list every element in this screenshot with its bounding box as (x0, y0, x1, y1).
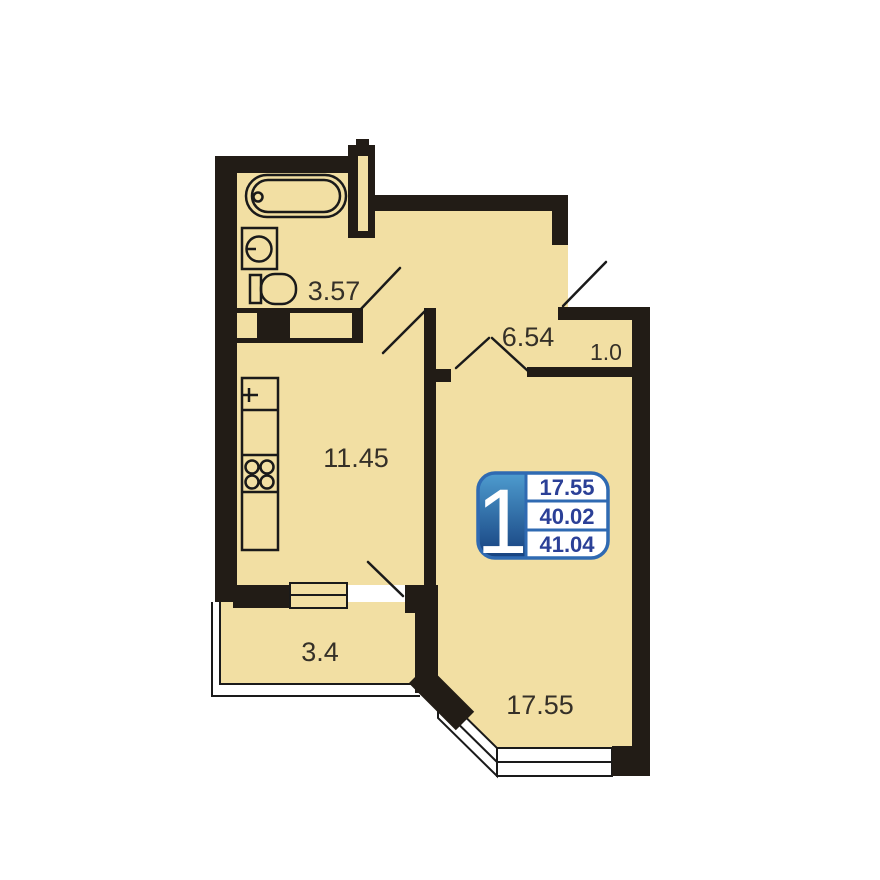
wall-hall-top (375, 195, 568, 211)
wall-left-exterior (215, 156, 237, 602)
wall-right-exterior (632, 307, 650, 776)
badge-living-area: 17.55 (539, 475, 594, 500)
ventilation-shaft-cap (356, 139, 369, 146)
wall-balcony-pier (405, 585, 438, 613)
room-label-kitchen: 11.45 (323, 443, 389, 473)
badge-room-count: 1 (476, 471, 527, 573)
ventilation-shaft-slot (358, 156, 368, 231)
badge-apartment-area: 40.02 (539, 504, 594, 529)
wall-kitchen-hall (424, 308, 436, 590)
floor-plan: 3.57 6.54 1.0 11.45 3.4 17.55 1 17.55 40… (0, 0, 880, 880)
wall-under-kitchen-window (233, 585, 290, 608)
wall-bathroom-top (215, 156, 348, 173)
room-label-hallway: 6.54 (502, 322, 555, 352)
wall-room-door-jamb (435, 369, 451, 382)
entrance-door-swing (563, 262, 606, 306)
badge-total-area: 41.04 (539, 532, 595, 557)
wall-entrance-jamb (552, 195, 568, 245)
room-label-bathroom: 3.57 (308, 276, 361, 306)
area-badge: 1 17.55 40.02 41.04 (476, 471, 608, 573)
vent-duct-large (290, 313, 352, 338)
wall-closet-bottom (527, 367, 632, 377)
room-label-closet: 1.0 (590, 339, 622, 365)
room-label-living-room: 17.55 (506, 690, 574, 720)
room-label-balcony: 3.4 (301, 637, 339, 667)
wall-bay-corner-block (612, 746, 650, 776)
vent-duct-small (237, 313, 257, 338)
